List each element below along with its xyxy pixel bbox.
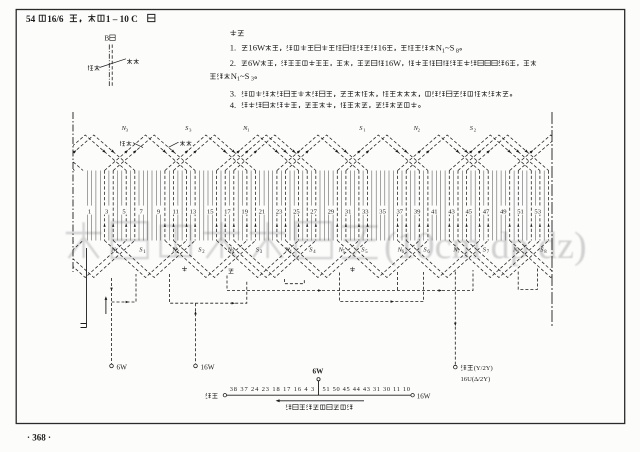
- svg-text:6W: 6W: [313, 367, 325, 375]
- svg-text:41: 41: [431, 209, 438, 216]
- svg-text:15: 15: [207, 209, 214, 216]
- svg-text:19: 19: [241, 209, 248, 216]
- svg-text:53: 53: [534, 209, 541, 216]
- svg-text:6W: 6W: [248, 59, 260, 68]
- svg-text:45: 45: [466, 209, 473, 216]
- svg-text:16: 16: [378, 43, 387, 53]
- svg-text:47: 47: [483, 209, 490, 216]
- svg-text:16U(: 16U(: [461, 376, 475, 383]
- svg-text:~S: ~S: [445, 43, 455, 53]
- svg-text:6W: 6W: [117, 363, 128, 371]
- svg-text:/2Y): /2Y): [478, 376, 490, 383]
- svg-text:B: B: [105, 35, 110, 43]
- svg-text:~S: ~S: [240, 71, 250, 81]
- svg-text:35: 35: [379, 209, 386, 216]
- svg-text:11: 11: [173, 209, 179, 216]
- svg-text:39: 39: [414, 209, 421, 216]
- svg-text:1: 1: [88, 209, 91, 216]
- svg-text:25: 25: [293, 209, 300, 216]
- svg-text:1 – 10 C: 1 – 10 C: [106, 14, 138, 24]
- svg-text:37: 37: [397, 209, 404, 216]
- svg-text:16W: 16W: [385, 59, 401, 68]
- svg-text:16W: 16W: [248, 43, 266, 53]
- svg-text:(Y/2Y): (Y/2Y): [474, 365, 493, 372]
- svg-text:51 50 45 44 43 31 30 11 10: 51 50 45 44 43 31 30 11 10: [323, 386, 411, 393]
- svg-text:21: 21: [259, 209, 266, 216]
- svg-text:4.: 4.: [230, 100, 236, 110]
- svg-text:· 368 ·: · 368 ·: [27, 433, 51, 443]
- svg-text:16W: 16W: [417, 392, 431, 400]
- svg-text:17: 17: [224, 209, 231, 216]
- svg-text:33: 33: [362, 209, 369, 216]
- svg-text:49: 49: [500, 209, 507, 216]
- svg-text:16W: 16W: [201, 363, 215, 371]
- svg-text:6: 6: [505, 59, 509, 68]
- svg-text:38 37 24 23 18 17 16 4 3: 38 37 24 23 18 17 16 4 3: [230, 386, 315, 393]
- svg-text:51: 51: [517, 209, 524, 216]
- svg-text:8: 8: [456, 47, 459, 54]
- svg-text:16/6: 16/6: [47, 14, 64, 24]
- svg-text:2.: 2.: [230, 59, 236, 68]
- svg-text:31: 31: [345, 209, 352, 216]
- svg-text:27: 27: [310, 209, 317, 216]
- svg-text:1.: 1.: [230, 43, 236, 53]
- svg-text:54: 54: [26, 14, 36, 24]
- svg-text:3: 3: [251, 76, 254, 83]
- svg-text:43: 43: [448, 209, 455, 216]
- svg-text:29: 29: [328, 209, 335, 216]
- svg-text:23: 23: [276, 209, 283, 216]
- svg-text:13: 13: [190, 209, 197, 216]
- svg-text:3.: 3.: [230, 89, 236, 99]
